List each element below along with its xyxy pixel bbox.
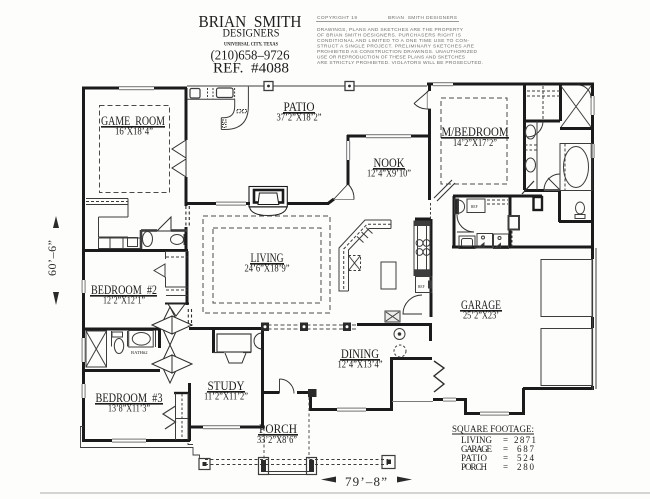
svg-text:CONDITIONAL AND LIMITED TO A O: CONDITIONAL AND LIMITED TO A ONE TIME US…: [317, 38, 469, 44]
svg-text:280: 280: [517, 462, 535, 472]
svg-text:REF: REF: [471, 205, 478, 209]
svg-text:16’X18’4”: 16’X18’4”: [115, 127, 153, 138]
svg-text:BATH#2: BATH#2: [131, 350, 148, 355]
svg-text:COPYRIGHT 19: COPYRIGHT 19: [317, 15, 357, 21]
svg-text:12’4”X13’4”: 12’4”X13’4”: [338, 360, 383, 371]
svg-text:PROHIBITED AS CONSTRUCTION DRA: PROHIBITED AS CONSTRUCTION DRAWINGS. UNA…: [317, 49, 478, 55]
svg-text:DRAWINGS, PLANS AND SKETCHES A: DRAWINGS, PLANS AND SKETCHES ARE THE PRO…: [317, 27, 464, 33]
svg-text:REF. #4088: REF. #4088: [213, 61, 289, 77]
svg-text:33’2”X8’6”: 33’2”X8’6”: [257, 435, 297, 446]
svg-text:12’2”X12’1”: 12’2”X12’1”: [103, 296, 145, 307]
svg-text:25’2”X23’: 25’2”X23’: [463, 311, 499, 322]
svg-text:OF BRIAN SMITH DESIGNERS. PUR: OF BRIAN SMITH DESIGNERS. PURCHASERS RIG…: [317, 33, 461, 39]
svg-text:=: =: [503, 462, 508, 472]
svg-text:13’8”X11’3”: 13’8”X11’3”: [108, 404, 150, 415]
svg-text:PORCH: PORCH: [259, 421, 297, 436]
svg-text:USE OR REPRODUCTION OF THESE P: USE OR REPRODUCTION OF THESE PLANS AND S…: [317, 55, 465, 61]
svg-text:12’4”X9’10”: 12’4”X9’10”: [367, 169, 411, 180]
svg-text:60’–6”: 60’–6”: [45, 240, 59, 276]
svg-text:M/BEDROOM: M/BEDROOM: [442, 124, 509, 139]
svg-text:14’2”X17’2”: 14’2”X17’2”: [453, 138, 497, 149]
svg-text:STRUCT A SINGLE PROJECT. PREL: STRUCT A SINGLE PROJECT. PRELIMINARY SKE…: [317, 44, 474, 50]
svg-text:REF: REF: [418, 285, 425, 289]
svg-text:DESIGNERS: DESIGNERS: [223, 28, 280, 40]
svg-text:79’–8”: 79’–8”: [345, 474, 387, 489]
svg-text:37’2”X18’2”: 37’2”X18’2”: [277, 113, 322, 124]
svg-text:UNIVERSAL CITY, TEXAS: UNIVERSAL CITY, TEXAS: [224, 42, 278, 48]
svg-text:PORCH: PORCH: [461, 462, 488, 472]
svg-text:SQUARE FOOTAGE:: SQUARE FOOTAGE:: [452, 425, 534, 435]
svg-text:24’6”X18’9”: 24’6”X18’9”: [245, 264, 290, 275]
svg-text:11’2”X11’2”: 11’2”X11’2”: [204, 392, 248, 403]
svg-text:ARE STRICTLY PROHIBITED. VIOL: ARE STRICTLY PROHIBITED. VIOLATORS WILL …: [317, 60, 483, 66]
svg-text:BRIAN SMITH DESIGNERS: BRIAN SMITH DESIGNERS: [388, 15, 457, 21]
